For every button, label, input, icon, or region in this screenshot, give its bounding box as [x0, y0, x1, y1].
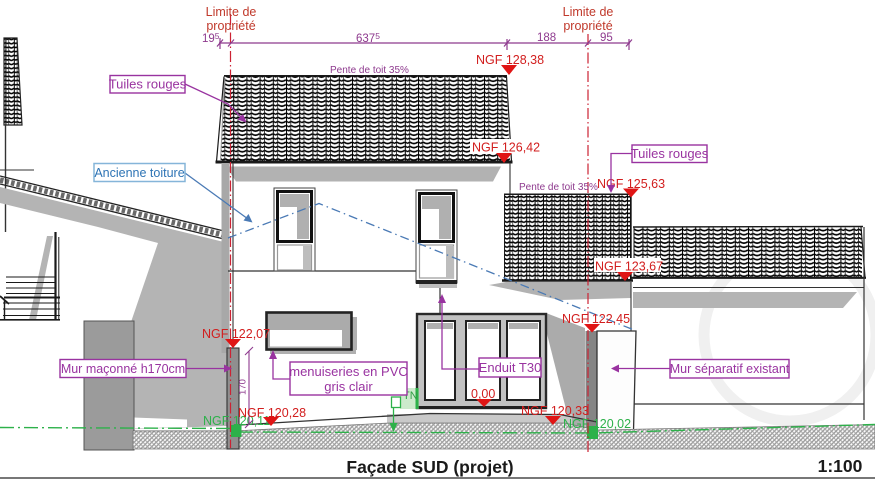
svg-text:Enduit T30: Enduit T30 [479, 360, 542, 375]
svg-text:NGF 122,07: NGF 122,07 [202, 327, 270, 341]
svg-text:Mur séparatif existant: Mur séparatif existant [670, 362, 790, 376]
svg-text:Limite de: Limite de [206, 5, 257, 19]
svg-text:Pente de toit 35%: Pente de toit 35% [330, 65, 409, 76]
svg-text:NGF 123,67: NGF 123,67 [595, 260, 663, 274]
svg-text:gris clair: gris clair [324, 379, 373, 394]
svg-text:NGF 122,45: NGF 122,45 [562, 312, 630, 326]
svg-text:Façade SUD (projet): Façade SUD (projet) [346, 457, 513, 477]
svg-text:170: 170 [238, 379, 249, 395]
svg-text:NGF 120,33: NGF 120,33 [521, 404, 589, 418]
svg-text:Pente de toit 35%: Pente de toit 35% [519, 182, 598, 193]
svg-text:1:100: 1:100 [818, 456, 863, 476]
svg-text:NGF 128,38: NGF 128,38 [476, 53, 544, 67]
svg-text:Limite de: Limite de [563, 5, 614, 19]
svg-text:95: 95 [600, 32, 613, 44]
svg-text:0,00: 0,00 [471, 387, 495, 401]
svg-text:propriété: propriété [206, 19, 255, 33]
svg-text:Tuiles rouges: Tuiles rouges [631, 146, 709, 161]
svg-text:188: 188 [537, 32, 556, 44]
svg-text:Ancienne toiture: Ancienne toiture [94, 166, 184, 180]
svg-text:NGF 126,42: NGF 126,42 [472, 141, 540, 155]
svg-text:Mur maçonné h170cm: Mur maçonné h170cm [61, 362, 185, 376]
svg-text:menuiseries en PVC: menuiseries en PVC [289, 364, 408, 379]
svg-text:propriété: propriété [563, 19, 612, 33]
svg-text:Tuiles rouges: Tuiles rouges [109, 77, 187, 92]
